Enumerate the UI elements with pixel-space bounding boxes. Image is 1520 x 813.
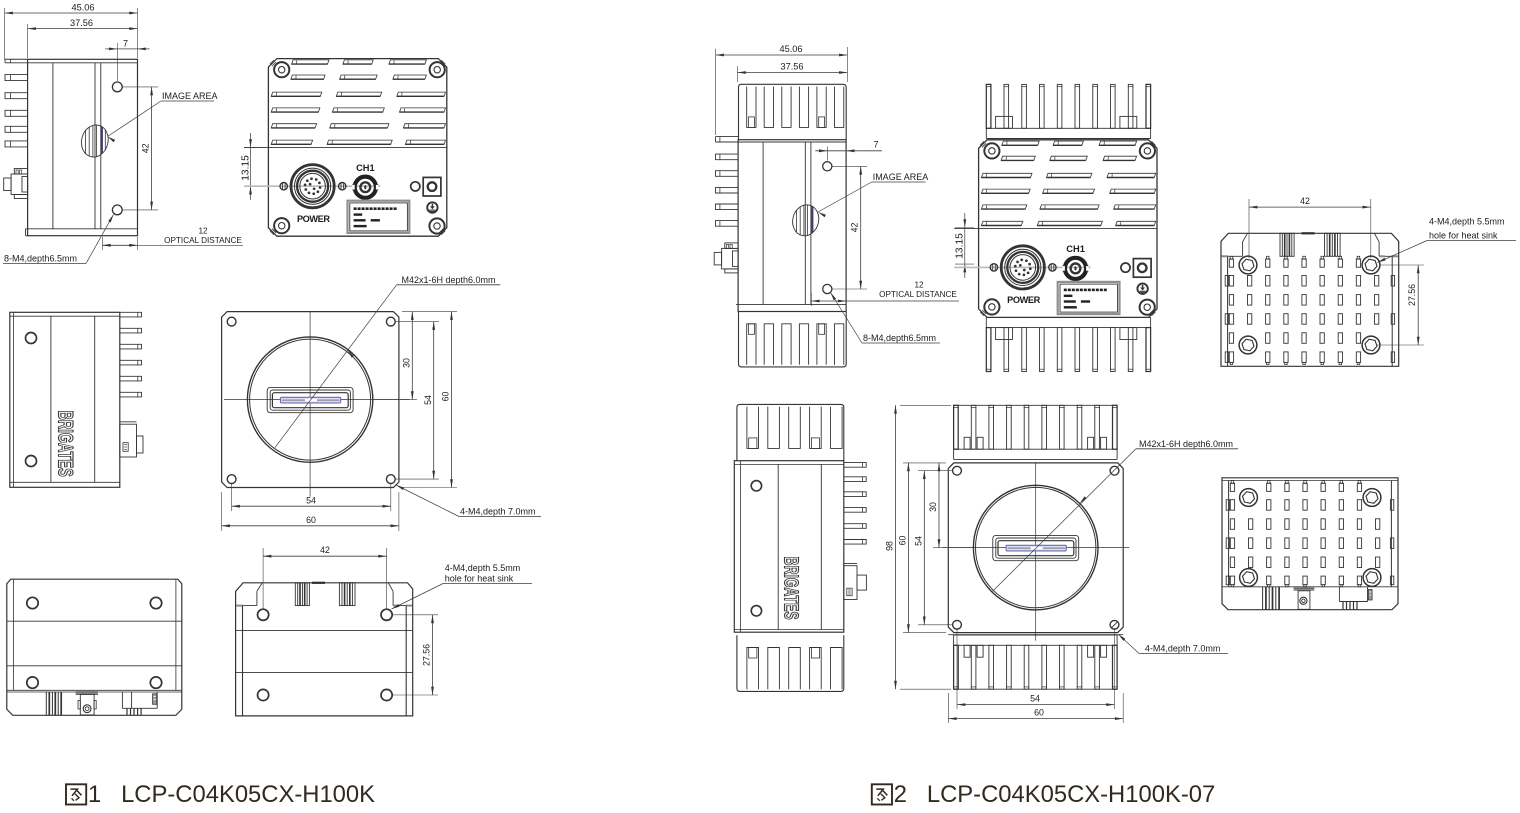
svg-text:M42x1-6H depth6.0mm: M42x1-6H depth6.0mm: [1139, 439, 1233, 449]
svg-text:37.56: 37.56: [70, 18, 93, 28]
svg-text:4-M4,depth 7.0mm: 4-M4,depth 7.0mm: [460, 507, 536, 517]
svg-text:IMAGE AREA: IMAGE AREA: [162, 91, 218, 101]
svg-text:1 LCP-C04K05CX-H100K: 1 LCP-C04K05CX-H100K: [88, 781, 375, 808]
svg-text:60: 60: [441, 392, 451, 402]
svg-text:60: 60: [1034, 708, 1044, 718]
svg-text:45.06: 45.06: [72, 3, 95, 13]
svg-text:4-M4,depth 5.5mm: 4-M4,depth 5.5mm: [1429, 217, 1505, 227]
svg-text:30: 30: [402, 358, 412, 368]
svg-text:OPTICAL DISTANCE: OPTICAL DISTANCE: [164, 236, 242, 245]
svg-text:12: 12: [198, 227, 208, 236]
svg-text:98: 98: [885, 541, 895, 551]
svg-text:POWER: POWER: [297, 214, 330, 224]
svg-text:13.15: 13.15: [955, 233, 966, 259]
svg-text:54: 54: [306, 496, 316, 506]
svg-text:4-M4,depth 5.5mm: 4-M4,depth 5.5mm: [445, 563, 521, 573]
svg-text:54: 54: [913, 536, 923, 546]
svg-text:45.06: 45.06: [780, 44, 803, 54]
svg-text:BRIGATES: BRIGATES: [780, 557, 803, 620]
svg-text:2 LCP-C04K05CX-H100K-07: 2 LCP-C04K05CX-H100K-07: [894, 781, 1215, 808]
svg-text:42: 42: [1300, 196, 1310, 206]
svg-text:hole for heat sink: hole for heat sink: [445, 574, 514, 584]
svg-text:42: 42: [320, 545, 330, 555]
svg-text:IMAGE AREA: IMAGE AREA: [873, 172, 929, 182]
svg-text:54: 54: [1030, 694, 1040, 704]
svg-text:8-M4,depth6.5mm: 8-M4,depth6.5mm: [4, 254, 77, 264]
svg-text:4-M4,depth 7.0mm: 4-M4,depth 7.0mm: [1145, 643, 1221, 653]
svg-text:12: 12: [914, 281, 924, 290]
svg-text:60: 60: [306, 515, 316, 525]
svg-text:42: 42: [141, 143, 151, 153]
svg-text:BRIGATES: BRIGATES: [54, 411, 78, 477]
svg-text:37.56: 37.56: [781, 62, 804, 72]
svg-text:7: 7: [873, 140, 878, 150]
svg-text:CH1: CH1: [356, 163, 375, 173]
svg-text:42: 42: [850, 223, 860, 233]
svg-text:POWER: POWER: [1007, 295, 1040, 305]
svg-text:OPTICAL DISTANCE: OPTICAL DISTANCE: [879, 290, 957, 299]
svg-text:60: 60: [897, 536, 907, 546]
svg-text:27.56: 27.56: [422, 644, 432, 666]
svg-text:27.56: 27.56: [1407, 284, 1417, 306]
svg-text:8-M4,depth6.5mm: 8-M4,depth6.5mm: [863, 333, 936, 343]
svg-text:CH1: CH1: [1066, 244, 1085, 254]
svg-text:M42x1-6H depth6.0mm: M42x1-6H depth6.0mm: [402, 275, 496, 285]
svg-text:7: 7: [123, 38, 128, 48]
svg-text:54: 54: [423, 395, 433, 405]
svg-text:30: 30: [928, 502, 938, 512]
svg-text:13.15: 13.15: [241, 155, 252, 181]
svg-text:hole for heat sink: hole for heat sink: [1429, 230, 1498, 240]
